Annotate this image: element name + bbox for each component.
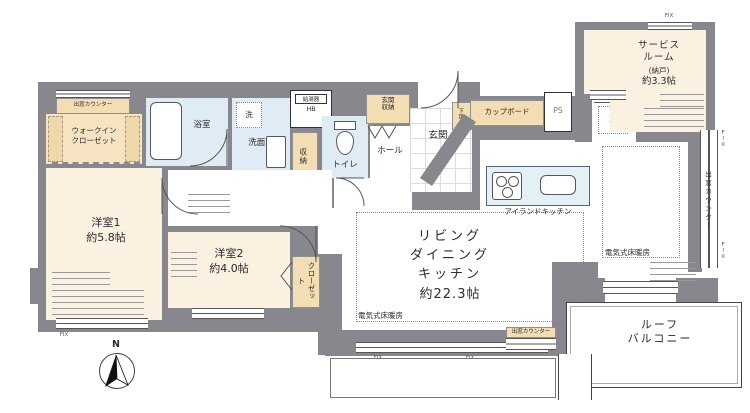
bay-counter-top-left-label: 出窓カウンター (58, 102, 128, 109)
floor-heating-label-right: 電気式床暖房 (605, 248, 663, 258)
corridor-east (334, 178, 412, 212)
ldk-size-label: 約22.3帖 (380, 287, 520, 304)
column-below (558, 354, 592, 400)
wic-window (56, 90, 130, 98)
pipe-space-label: PS (544, 106, 572, 116)
bathroom-label: 浴室 (180, 120, 224, 131)
kitchen-sink (540, 175, 576, 195)
storage-label: 収納 (298, 140, 308, 172)
floor-plan: 出窓カウンター ウォークイン クローゼット 浴室 洗 洗面室 給湯器 HB 収納… (0, 0, 750, 413)
bay-window-bottom (506, 338, 556, 350)
service-room-window-fix: FIX (654, 13, 684, 20)
walk-in-closet-label: ウォークイン クローゼット (64, 126, 124, 146)
service-room-window (648, 22, 692, 30)
bedroom-1-window (56, 318, 148, 329)
bedroom-2-closet-label: クローゼット (296, 262, 316, 300)
bedroom-1-size-label: 約5.8帖 (66, 231, 146, 245)
shoe-cabinet-label: 下足入 (456, 105, 463, 128)
fix-right-top: FIX (719, 126, 726, 152)
hall-label: ホール (371, 146, 409, 157)
bay-counter-right-label: 出窓カウンター (703, 166, 711, 236)
cupboard-label: カップボード (471, 107, 543, 117)
wic-hanger-right (125, 116, 140, 162)
service-room-shading2 (644, 108, 704, 130)
bay-counter-bottom-label: 出窓カウンター (506, 329, 556, 336)
service-room-size-label: 約3.3帖 (618, 76, 700, 88)
service-room-left (584, 30, 612, 94)
fix-bedroom-1: FIX (52, 332, 76, 339)
ldk-label: リビング ダイニング キッチン (380, 228, 520, 285)
bedroom-1-label: 洋室1 (66, 216, 146, 230)
balcony-window (603, 281, 678, 294)
service-room-annex-label: (納戸) (618, 66, 700, 76)
roof-balcony-label: ルーフ バルコニー (600, 318, 720, 347)
stove (492, 172, 522, 200)
burner-icon (508, 176, 519, 187)
floor-heating-area-right (602, 146, 680, 258)
under-structure (330, 358, 556, 398)
vanity (266, 136, 286, 168)
wall-room1-bump (30, 268, 44, 304)
entrance-label: 玄関 (418, 130, 458, 142)
wic-sliding-door (52, 162, 140, 164)
service-room-shading (660, 94, 704, 108)
bedroom-2-label: 洋室2 (196, 247, 262, 261)
burner-icon (502, 187, 513, 198)
water-heater-sub-label: HB (291, 105, 331, 113)
toilet-tank (334, 121, 356, 130)
corridor-step-lines (188, 194, 230, 214)
entrance-storage-label: 玄関 収納 (368, 97, 408, 112)
island-kitchen-label: アイランドキッチン (488, 207, 588, 217)
compass-north-label: N (108, 339, 124, 351)
bathtub (150, 102, 182, 160)
service-room-label: サービス ルーム (618, 40, 700, 65)
bedroom-2-size-label: 約4.0帖 (196, 262, 262, 276)
fix-right-bottom: FIX (719, 238, 726, 264)
bedroom-2-window (192, 308, 264, 319)
ldk-opening (318, 208, 342, 254)
compass (99, 353, 135, 389)
floor-heating-label-main: 電気式床暖房 (358, 311, 418, 321)
bedroom-2-shading (171, 252, 197, 282)
bedroom-1-shading2 (52, 290, 144, 316)
washer-label: 洗 (236, 110, 262, 120)
bedroom-1-shading (52, 272, 110, 290)
burner-icon (496, 176, 507, 187)
wic-hanger-left (48, 116, 63, 162)
water-heater-label: 給湯器 (295, 94, 327, 104)
service-room-door (590, 90, 626, 100)
